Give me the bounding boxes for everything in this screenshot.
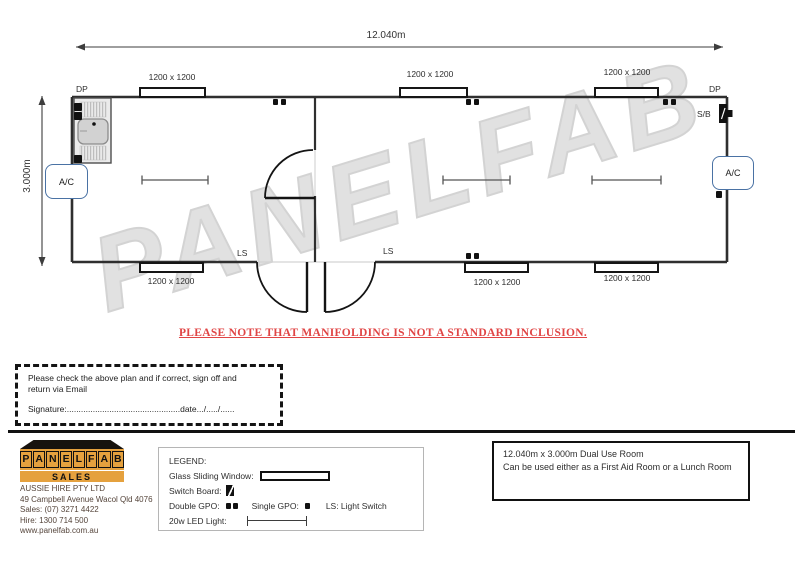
window-size-label: 1200 x 1200 <box>395 70 465 79</box>
legend-switchboard-row: Switch Board: <box>169 483 423 498</box>
company-hire-phone: Hire: 1300 714 500 <box>20 516 153 527</box>
single-gpo-icons <box>74 155 722 198</box>
room-info-box: 12.040m x 3.000m Dual Use Room Can be us… <box>492 441 750 501</box>
air-conditioner-right: A/C <box>712 156 754 190</box>
logo-letter: A <box>33 451 46 468</box>
external-door-left <box>257 262 307 312</box>
led-light-symbol-icon <box>247 516 307 526</box>
logo-letter: P <box>20 451 32 468</box>
logo-letter: N <box>46 451 59 468</box>
legend-gpo-row: Double GPO: Single GPO: LS: Light Switch <box>169 498 423 513</box>
double-gpo-icons <box>74 99 676 259</box>
width-dimension-line <box>76 44 723 51</box>
footer-divider <box>8 430 795 433</box>
logo-letter: B <box>112 451 125 468</box>
legend-box: LEGEND: Glass Sliding Window: Switch Boa… <box>158 447 424 531</box>
window-symbols <box>140 88 658 272</box>
window-size-label: 1200 x 1200 <box>462 278 532 287</box>
company-name: AUSSIE HIRE PTY LTD <box>20 484 153 495</box>
led-light-symbols <box>142 176 661 185</box>
floor-plan-page: PANELFAB <box>0 0 800 564</box>
logo-subtitle: SALES <box>20 470 124 482</box>
sign-off-instruction-line1: Please check the above plan and if corre… <box>28 373 270 384</box>
logo-letter: F <box>86 451 97 468</box>
window-size-label: 1200 x 1200 <box>592 68 662 77</box>
double-gpo-symbol-icon <box>226 503 238 509</box>
switch-board-symbol-icon <box>226 485 234 496</box>
window-symbol-icon <box>260 471 330 481</box>
manifolding-notice: PLEASE NOTE THAT MANIFOLDING IS NOT A ST… <box>0 327 766 339</box>
external-door-right <box>325 262 375 312</box>
room-usage-note: Can be used either as a First Aid Room o… <box>503 461 739 474</box>
logo-letters: P A N E L F A B <box>20 449 124 470</box>
legend-window-row: Glass Sliding Window: <box>169 468 423 483</box>
logo-letter: A <box>98 451 111 468</box>
width-dimension-label: 12.040m <box>336 31 436 41</box>
company-website: www.panelfab.com.au <box>20 526 153 537</box>
ac-label: A/C <box>725 168 740 178</box>
legend-title-row: LEGEND: <box>169 453 423 468</box>
legend-led-row: 20w LED Light: <box>169 513 423 528</box>
legend-window-label: Glass Sliding Window: <box>169 471 254 481</box>
logo-roof-icon <box>20 440 124 449</box>
light-switch-label: LS <box>237 249 247 258</box>
ac-label: A/C <box>59 177 74 187</box>
downpipe-label-left: DP <box>76 85 88 94</box>
depth-dimension-label: 3.000m <box>23 155 33 197</box>
sign-off-instruction-line2: return via Email <box>28 384 270 395</box>
single-gpo-symbol-icon <box>305 503 310 509</box>
legend-title: LEGEND: <box>169 456 206 466</box>
window-size-label: 1200 x 1200 <box>136 277 206 286</box>
switch-board-icon <box>719 104 733 123</box>
logo-letter: E <box>60 451 72 468</box>
legend-led-label: 20w LED Light: <box>169 516 227 526</box>
legend-single-gpo-label: Single GPO: <box>252 501 299 511</box>
sign-off-box: Please check the above plan and if corre… <box>15 364 283 426</box>
light-switch-label: LS <box>383 247 393 256</box>
company-details: AUSSIE HIRE PTY LTD 49 Campbell Avenue W… <box>20 484 153 537</box>
logo-letter: L <box>73 451 84 468</box>
air-conditioner-left: A/C <box>45 164 88 199</box>
legend-light-switch-label: LS: Light Switch <box>326 501 387 511</box>
window-size-label: 1200 x 1200 <box>592 274 662 283</box>
company-street: 49 Campbell Avenue Wacol Qld 4076 <box>20 495 153 506</box>
window-size-label: 1200 x 1200 <box>137 73 207 82</box>
company-sales-phone: Sales: (07) 3271 4422 <box>20 505 153 516</box>
internal-door <box>265 150 315 198</box>
panelfab-logo: P A N E L F A B SALES <box>20 440 124 482</box>
legend-double-gpo-label: Double GPO: <box>169 501 220 511</box>
downpipe-label-right: DP <box>709 85 721 94</box>
legend-switchboard-label: Switch Board: <box>169 486 221 496</box>
signature-line: Signature:..............................… <box>28 404 270 414</box>
room-size-title: 12.040m x 3.000m Dual Use Room <box>503 448 739 461</box>
switch-board-label: S/B <box>697 110 711 119</box>
